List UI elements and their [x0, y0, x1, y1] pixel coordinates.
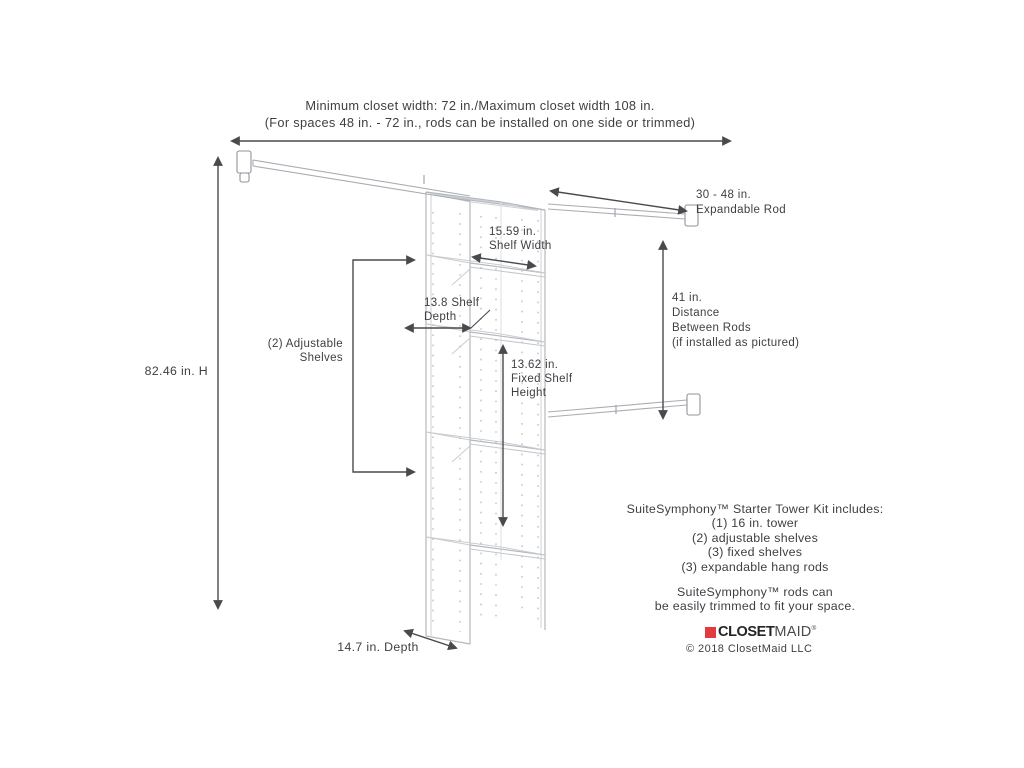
shelf-width-label-line1: 15.59 in. — [489, 226, 552, 240]
shelf-width-label-line2: Shelf Width — [489, 240, 552, 254]
closetmaid-logo-mark — [705, 627, 716, 638]
depth-dimension-label: 14.7 in. Depth — [328, 641, 428, 655]
kit-info-item: (1) 16 in. tower — [600, 516, 910, 530]
expandable-rod-label: 30 - 48 in. Expandable Rod — [696, 188, 786, 218]
fixed-shelf-height-label-line3: Height — [511, 387, 572, 401]
kit-info-item: (3) expandable hang rods — [600, 560, 910, 574]
tower-drawing — [426, 192, 545, 644]
rod-middle-right — [548, 400, 687, 417]
shelf-depth-label-line2: Depth — [424, 311, 479, 325]
expandable-rod-label-line1: 30 - 48 in. — [696, 188, 786, 203]
adjustable-shelves-label-line1: (2) Adjustable — [225, 338, 343, 352]
kit-info: SuiteSymphony™ Starter Tower Kit include… — [600, 502, 910, 614]
adjustable-shelves-label-line2: Shelves — [225, 352, 343, 366]
registered-mark: ® — [811, 625, 816, 632]
closet-width-note: Minimum closet width: 72 in./Maximum clo… — [180, 97, 780, 131]
shelf-depth-label-line1: 13.8 Shelf — [424, 297, 479, 311]
fixed-shelf-height-label-line1: 13.62 in. — [511, 359, 572, 373]
rod-distance-label-line4: (if installed as pictured) — [672, 336, 799, 351]
expandable-rod-label-line2: Expandable Rod — [696, 203, 786, 218]
kit-info-item: (2) adjustable shelves — [600, 531, 910, 545]
wall-brackets — [237, 151, 700, 415]
kit-info-note: SuiteSymphony™ rods can be easily trimme… — [600, 585, 910, 614]
shelf-width-label: 15.59 in. Shelf Width — [489, 226, 552, 254]
fixed-shelf-height-label-line2: Fixed Shelf — [511, 373, 572, 387]
peg-holes — [433, 212, 538, 632]
closetmaid-logo-maid: MAID — [774, 624, 811, 640]
product-diagram: Minimum closet width: 72 in./Maximum clo… — [0, 0, 1024, 768]
kit-info-title: SuiteSymphony™ Starter Tower Kit include… — [600, 502, 910, 516]
closetmaid-logo: CLOSET MAID ® — [705, 624, 816, 640]
adjustable-shelves-label: (2) Adjustable Shelves — [225, 338, 343, 366]
bracket-top-left — [237, 151, 251, 173]
rod-distance-label-line1: 41 in. — [672, 291, 799, 306]
rod-distance-label-line3: Between Rods — [672, 321, 799, 336]
closet-width-note-line1: Minimum closet width: 72 in./Maximum clo… — [180, 97, 780, 114]
closet-width-note-line2: (For spaces 48 in. - 72 in., rods can be… — [180, 114, 780, 131]
rod-distance-label: 41 in. Distance Between Rods (if install… — [672, 291, 799, 351]
height-dimension-label: 82.46 in. H — [128, 365, 208, 379]
adjustable-shelves-bracket — [353, 260, 414, 472]
closetmaid-logo-closet: CLOSET — [718, 624, 774, 640]
bracket-middle-right — [687, 394, 700, 415]
kit-info-item: (3) fixed shelves — [600, 545, 910, 559]
rod-length-arrow — [551, 191, 686, 211]
kit-info-note-line2: be easily trimmed to fit your space. — [600, 599, 910, 613]
rod-distance-label-line2: Distance — [672, 306, 799, 321]
kit-info-note-line1: SuiteSymphony™ rods can — [600, 585, 910, 599]
shelf-depth-label: 13.8 Shelf Depth — [424, 297, 479, 325]
bracket-top-left-hook — [240, 173, 249, 182]
fixed-shelf-height-label: 13.62 in. Fixed Shelf Height — [511, 359, 572, 400]
rod-top-right — [548, 204, 685, 219]
copyright-text: © 2018 ClosetMaid LLC — [686, 643, 812, 657]
